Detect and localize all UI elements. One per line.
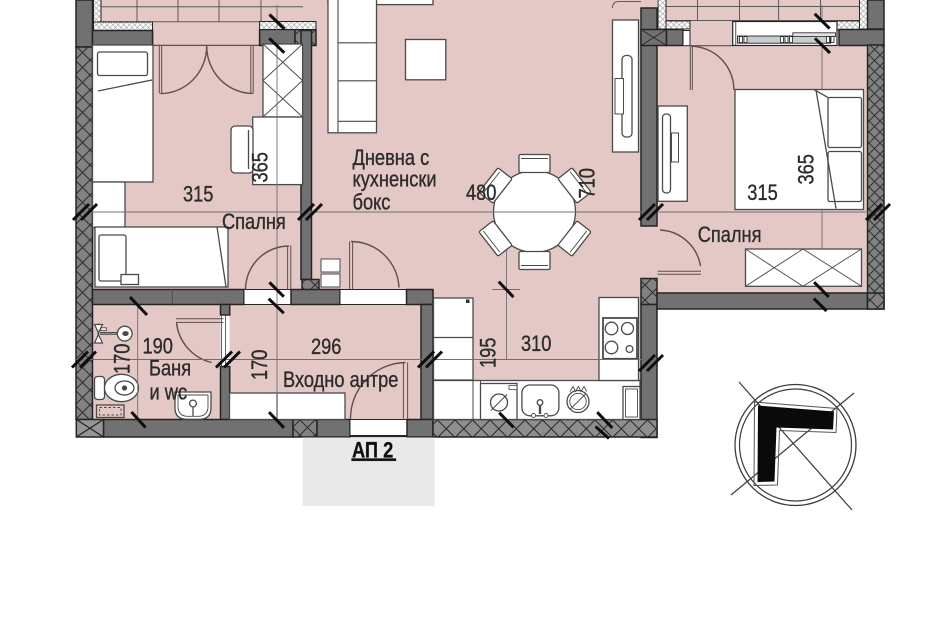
svg-text:480: 480	[466, 182, 496, 206]
svg-text:170: 170	[111, 344, 135, 374]
svg-text:310: 310	[521, 333, 551, 357]
svg-text:Дневна с: Дневна с	[353, 147, 430, 171]
svg-text:296: 296	[311, 336, 341, 360]
svg-text:Спалня: Спалня	[222, 211, 286, 235]
svg-text:бокс: бокс	[353, 191, 391, 215]
svg-text:195: 195	[477, 338, 501, 368]
svg-text:315: 315	[183, 183, 213, 207]
svg-text:Баня: Баня	[149, 357, 191, 381]
svg-text:170: 170	[249, 350, 273, 380]
svg-text:365: 365	[249, 152, 273, 182]
svg-text:365: 365	[795, 154, 819, 184]
svg-text:315: 315	[747, 182, 777, 206]
svg-text:кухненски: кухненски	[353, 168, 437, 192]
svg-text:Спалня: Спалня	[698, 224, 762, 248]
svg-text:и wc: и wc	[150, 381, 188, 405]
svg-text:710: 710	[576, 168, 600, 198]
svg-text:Входно антре: Входно антре	[283, 369, 398, 393]
svg-text:190: 190	[143, 335, 173, 359]
